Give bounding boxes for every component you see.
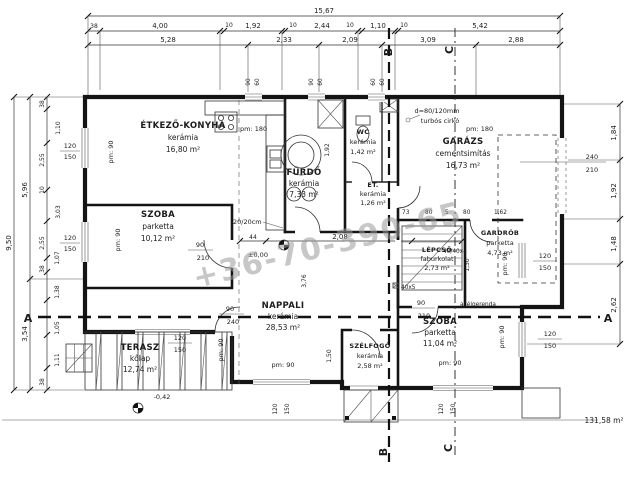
room-label-garazs: GARÁZS cementsimítás 16,73 m² <box>435 135 490 170</box>
window-size: 60 <box>371 78 377 86</box>
dim-label: 2,62 <box>610 297 618 313</box>
dim-label: 1,92 <box>245 22 261 30</box>
svg-text:parketta: parketta <box>142 222 174 231</box>
section-letter-c: C <box>442 444 455 452</box>
svg-text:SZÉLFOGÓ: SZÉLFOGÓ <box>349 341 390 350</box>
dim-label: 2,09 <box>342 36 358 44</box>
room-label-furdo: FÜRDŐ kerámia 7,33 m² <box>286 167 321 199</box>
window-size: 120 <box>64 234 76 242</box>
room-label-terasz: TERASZ kőlap 12,74 m² <box>121 343 160 374</box>
svg-text:kőlap: kőlap <box>130 354 151 363</box>
window-size: 150 <box>174 346 186 354</box>
dim-label: 10 <box>225 22 233 29</box>
dim-label: 5,28 <box>160 36 176 44</box>
window-size: 120 <box>539 252 551 260</box>
dim-label: 3,54 <box>21 326 29 342</box>
window-size: 120 <box>174 334 186 342</box>
window-size: 150 <box>544 342 556 350</box>
dim-label: 1,92 <box>324 143 331 157</box>
window-size: 150 <box>64 153 76 161</box>
window-size: 120 <box>439 403 445 414</box>
dim-label: 5,42 <box>472 22 488 30</box>
section-letter-b: B <box>377 448 390 456</box>
section-letter-a: A <box>604 312 613 325</box>
svg-text:kerámia: kerámia <box>350 138 376 146</box>
dim-label: 1,50 <box>326 349 333 363</box>
window-size: 150 <box>64 245 76 253</box>
window-size: 150 <box>539 264 551 272</box>
svg-text:FÜRDŐ: FÜRDŐ <box>286 167 321 178</box>
pm-label: pm: 90 <box>272 361 295 369</box>
dim-label: 3,09 <box>420 36 436 44</box>
door-size: 90 <box>226 305 234 313</box>
window-size: 90 <box>246 78 252 86</box>
pm-label: pm: 180 <box>466 125 493 133</box>
svg-text:parketta: parketta <box>424 328 456 337</box>
dim-overall-width: 15,67 <box>314 7 334 15</box>
dim-label: 1,05 <box>54 321 61 335</box>
svg-text:WC: WC <box>357 128 370 136</box>
dimension-chains: 15,67 38 4,00 10 1,92 10 2,44 10 1,10 10… <box>5 7 623 393</box>
pm-label: pm: 90 <box>114 229 122 252</box>
svg-text:16,80 m²: 16,80 m² <box>166 145 200 154</box>
pm-label: pm: 180 <box>240 125 267 133</box>
dim-label: 1,38 <box>54 285 61 299</box>
window-size: 90 <box>309 78 315 86</box>
svg-text:kerámia: kerámia <box>357 352 383 360</box>
dim-label: 1,84 <box>610 125 618 141</box>
window-size: 120 <box>64 142 76 150</box>
svg-text:1,26 m²: 1,26 m² <box>360 199 386 207</box>
svg-text:2,73 m²: 2,73 m² <box>424 264 450 272</box>
door-size: 90 <box>196 241 204 249</box>
kitchen-counter <box>205 101 285 115</box>
svg-text:GARDRÓB: GARDRÓB <box>481 228 519 237</box>
window-size: 60 <box>255 78 261 86</box>
window-size: 150 <box>285 403 291 414</box>
svg-text:16,73 m²: 16,73 m² <box>446 161 480 170</box>
svg-text:7,33 m²: 7,33 m² <box>289 190 318 199</box>
dim-label: 38 <box>39 378 46 386</box>
room-label-nappali: NAPPALI kerámia 28,53 m² <box>262 301 305 332</box>
dim-label: 5,96 <box>21 182 29 198</box>
dim-label: 1,92 <box>610 183 618 199</box>
svg-text:1,42 m²: 1,42 m² <box>350 148 376 156</box>
window-size: 60 <box>318 78 324 86</box>
chimney-note: turbós cirkó <box>421 117 459 125</box>
svg-text:parketta: parketta <box>486 239 513 247</box>
pm-label: pm: 90 <box>498 326 506 349</box>
pm-label: pm: 90 <box>501 253 509 276</box>
dim-label: 4,00 <box>152 22 168 30</box>
dim-label: 38 <box>90 23 98 30</box>
svg-text:kerámia: kerámia <box>289 179 319 188</box>
svg-text:ET.: ET. <box>367 181 378 189</box>
room-label-szoba-2: SZOBA parketta 11,04 m² <box>423 317 457 348</box>
svg-text:28,53 m²: 28,53 m² <box>266 323 300 332</box>
svg-text:kerámia: kerámia <box>168 133 198 142</box>
pm-label: pm: 90 <box>107 141 115 164</box>
level-marker-terrace: -0,42 <box>133 393 170 413</box>
dim-label: 1,07 <box>54 251 61 265</box>
section-letter-c: C <box>443 46 456 54</box>
room-label-wc: WC kerámia 1,42 m² <box>350 128 376 156</box>
dim-label: 2,55 <box>39 236 46 250</box>
section-letter-b: B <box>382 48 395 56</box>
dim-label: 1,48 <box>610 236 618 252</box>
dim-label: 80 <box>463 210 471 216</box>
post-note: 40x5 <box>401 285 416 291</box>
window-size: 120 <box>544 330 556 338</box>
window-size: 150 <box>451 403 457 414</box>
room-label-gardrob: GARDRÓB parketta 4,73 m² <box>481 228 519 257</box>
floor-plan-canvas: 15,67 38 4,00 10 1,92 10 2,44 10 1,10 10… <box>0 0 640 480</box>
section-letter-a: A <box>24 312 33 325</box>
room-label-szoba-1: SZOBA parketta 10,12 m² <box>141 210 175 243</box>
dim-label: 10 <box>39 186 46 194</box>
svg-text:ÉTKEZŐ-KONYHA: ÉTKEZŐ-KONYHA <box>140 119 225 131</box>
pm-label: pm: 90 <box>439 359 462 367</box>
svg-text:kerámia: kerámia <box>268 312 298 321</box>
dim-label: 1,10 <box>55 121 62 135</box>
wall-note: 20/20cm <box>233 218 262 226</box>
svg-text:NAPPALI: NAPPALI <box>262 301 305 311</box>
door-size: 240 <box>227 318 239 326</box>
dim-label: 1,62 <box>494 210 507 216</box>
dim-label: 2,55 <box>39 153 46 167</box>
svg-text:SZOBA: SZOBA <box>141 210 175 220</box>
floor-plan-page: 15,67 38 4,00 10 1,92 10 2,44 10 1,10 10… <box>0 0 640 480</box>
total-area-label: 131,58 m² <box>585 416 624 425</box>
svg-text:-0,42: -0,42 <box>154 393 171 401</box>
steel-beam-note: acélgerenda <box>460 301 496 308</box>
dim-label: 3,03 <box>55 205 62 219</box>
room-label-szelfogo: SZÉLFOGÓ kerámia 2,58 m² <box>349 341 390 370</box>
svg-text:TERASZ: TERASZ <box>121 343 160 353</box>
svg-text:10,12 m²: 10,12 m² <box>141 234 175 243</box>
door-size: 90 <box>417 299 425 307</box>
dim-label: 3,76 <box>301 274 308 288</box>
svg-text:GARÁZS: GARÁZS <box>443 135 484 147</box>
dim-label: 10 <box>289 22 297 29</box>
dim-label: 1,10 <box>370 22 386 30</box>
dim-label: 10 <box>346 22 354 29</box>
dim-label: 44 <box>249 234 257 241</box>
door-size: 210 <box>418 312 430 320</box>
svg-text:cementsimítás: cementsimítás <box>435 149 490 158</box>
window-size: 120 <box>273 403 279 414</box>
svg-text:kerámia: kerámia <box>360 190 386 198</box>
dim-label: 38 <box>39 265 46 273</box>
dim-label: 2,33 <box>276 36 292 44</box>
room-label-etkezo-konyha: ÉTKEZŐ-KONYHA kerámia 16,80 m² <box>140 119 225 154</box>
chimney-note: d=80/120mm <box>414 107 459 115</box>
dim-label: 9,50 <box>5 235 13 251</box>
pm-label: pm: 90 <box>217 339 225 362</box>
window-size: 60 <box>380 78 386 86</box>
svg-text:11,04 m²: 11,04 m² <box>423 339 457 348</box>
dim-label: 1,11 <box>54 353 61 367</box>
svg-text:12,74 m²: 12,74 m² <box>123 365 157 374</box>
dim-label: 2,88 <box>508 36 524 44</box>
garage-gate-size: 240 <box>586 153 598 161</box>
dim-label: 2,44 <box>314 22 330 30</box>
dim-label: 38 <box>39 100 46 108</box>
post-note: 40/40x4 <box>443 249 467 255</box>
garage-gate-size: 210 <box>586 166 598 174</box>
dim-label: 10 <box>400 22 408 29</box>
svg-text:2,58 m²: 2,58 m² <box>357 362 383 370</box>
svg-text:faburkolat: faburkolat <box>420 255 453 263</box>
